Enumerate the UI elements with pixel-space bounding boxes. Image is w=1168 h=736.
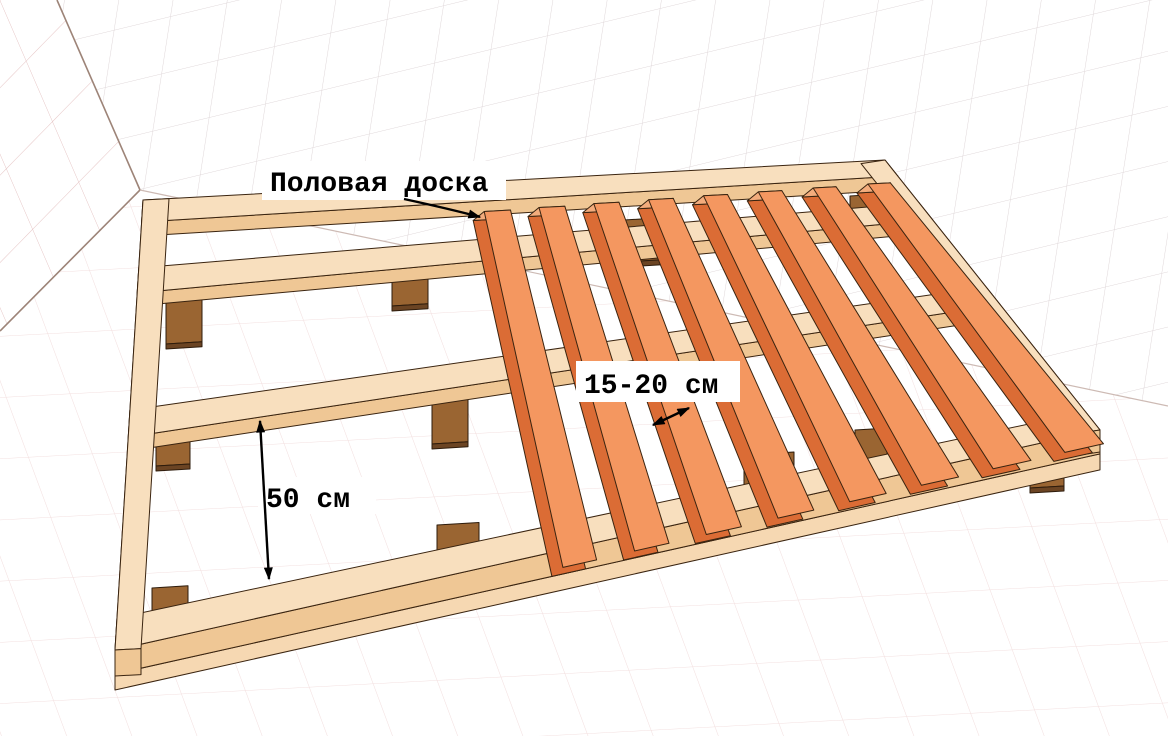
board-spacing-dimension: 15-20 см bbox=[584, 371, 718, 402]
left-rim-end bbox=[115, 649, 141, 676]
diagram-canvas: Половая доска 15-20 см 50 см bbox=[0, 0, 1168, 736]
floorboard-label: Половая доска bbox=[270, 169, 489, 200]
joist-spacing-dimension: 50 см bbox=[266, 485, 350, 516]
floor-construction-diagram: Половая доска 15-20 см 50 см bbox=[0, 0, 1168, 736]
